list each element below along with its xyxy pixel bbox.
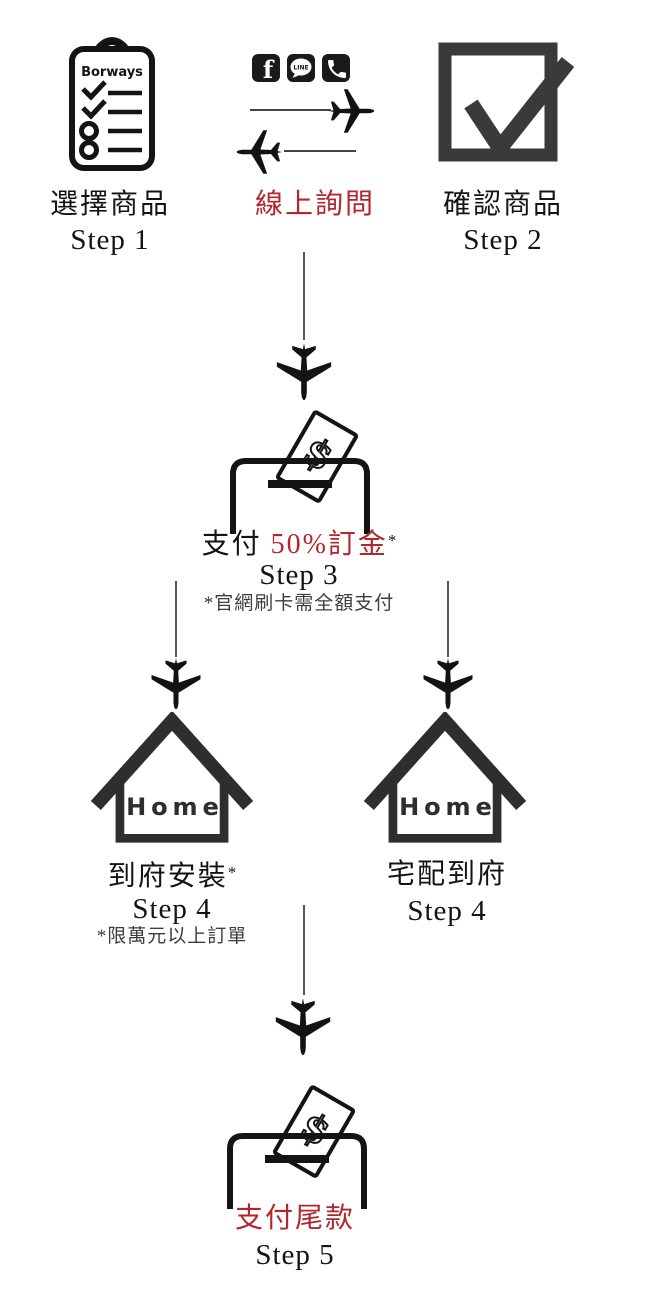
step3-asterisk: * — [388, 531, 397, 550]
step2-label: 確認商品 — [408, 189, 598, 221]
connector-line-2 — [303, 905, 305, 995]
step4-install-asterisk: * — [228, 863, 237, 882]
step5-step: Step 5 — [200, 1239, 390, 1271]
step3-pay-text: 支付 — [202, 529, 271, 560]
step3-step: Step 3 — [184, 559, 414, 591]
plane-down-icon-right — [421, 656, 475, 710]
home-delivery-icon — [363, 712, 527, 847]
facebook-icon[interactable]: f — [252, 54, 280, 82]
facebook-letter: f — [263, 55, 275, 82]
contact-channels: f LINE — [252, 54, 350, 82]
order-process-flowchart: 選擇商品 Step 1 f LINE 線上詢問 確認商品 Step 2 支付 — [0, 0, 647, 1305]
phone-icon[interactable] — [322, 54, 350, 82]
step4-delivery-label: 宅配到府 — [352, 859, 542, 891]
step4-install-note: *限萬元以上訂單 — [77, 925, 267, 949]
step5-label: 支付尾款 — [200, 1203, 390, 1235]
step3-deposit-text: 50%訂金 — [271, 529, 388, 560]
plane-down-icon-2 — [273, 994, 333, 1058]
checkbox-checked-icon — [438, 42, 574, 168]
step4-install-label: 到府安裝* — [77, 857, 267, 893]
plane-down-icon-left — [149, 656, 203, 710]
line-icon[interactable]: LINE — [287, 54, 315, 82]
plane-left-icon — [236, 128, 284, 176]
branch-line-right — [447, 581, 449, 657]
step3-note: *官網刷卡需全額支付 — [184, 592, 414, 616]
step3-label: 支付 50%訂金* — [184, 525, 414, 561]
plane-right-icon — [327, 87, 375, 135]
step4-delivery-step: Step 4 — [352, 895, 542, 927]
payment-box-icon — [225, 408, 375, 538]
inquiry-label: 線上詢問 — [220, 189, 410, 221]
step4-install-text: 到府安裝 — [108, 861, 228, 892]
branch-line-left — [175, 581, 177, 657]
final-payment-box-icon — [222, 1083, 372, 1213]
home-install-icon — [90, 712, 254, 847]
arrow-line-right — [250, 109, 331, 111]
step1-label: 選擇商品 — [15, 189, 205, 221]
plane-down-icon-1 — [274, 339, 334, 403]
step4-install-step: Step 4 — [77, 893, 267, 925]
arrow-line-left — [284, 150, 356, 152]
connector-line-1 — [303, 252, 305, 340]
step1-step: Step 1 — [15, 224, 205, 256]
clipboard-checklist-icon — [62, 36, 162, 172]
line-text: LINE — [293, 65, 308, 72]
step2-step: Step 2 — [408, 224, 598, 256]
